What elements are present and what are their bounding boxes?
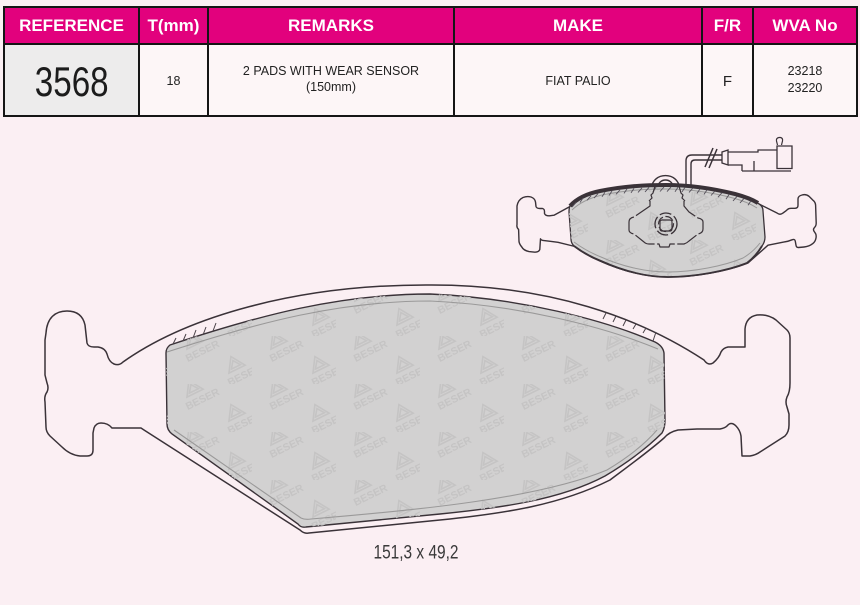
svg-text:151,3 x 49,2: 151,3 x 49,2 (374, 542, 459, 564)
